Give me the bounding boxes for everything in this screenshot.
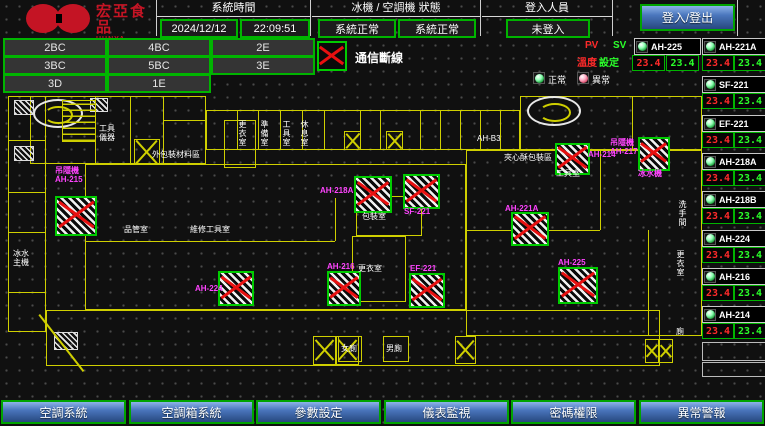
ahu-icon-EF-221[interactable] bbox=[409, 273, 445, 308]
equipment-label: AH-225 bbox=[558, 258, 586, 267]
brand-emblem-icon bbox=[26, 3, 92, 34]
wall-line bbox=[335, 198, 336, 241]
equipment-label: AH-224 bbox=[195, 284, 223, 293]
wall-line bbox=[460, 110, 461, 150]
room-label: 女廁 bbox=[341, 344, 357, 353]
stair-icon bbox=[386, 131, 403, 150]
unit-sv-value: 23.4 bbox=[666, 55, 699, 71]
floor-button-3bc[interactable]: 3BC bbox=[3, 56, 107, 75]
unit-name: EF-221 bbox=[719, 119, 749, 129]
unit-card[interactable]: EF-221 bbox=[702, 115, 765, 132]
room-label: 工具 儀器 bbox=[99, 124, 115, 142]
wall-line bbox=[258, 110, 259, 150]
led bbox=[706, 119, 715, 128]
unit-sv-value: 23.4 bbox=[734, 93, 765, 109]
equipment-label: AH-216 bbox=[327, 262, 355, 271]
unit-name: SF-221 bbox=[719, 80, 749, 90]
room-label: 品管室 bbox=[124, 225, 148, 234]
unit-led-icon bbox=[704, 233, 716, 245]
led bbox=[706, 272, 715, 281]
room-label: 洗手間 bbox=[678, 200, 687, 227]
ahu-status: 系統正常 bbox=[398, 19, 476, 38]
equipment-label: 吊隱機 AH-215 bbox=[55, 166, 83, 184]
equipment-label: EF-221 bbox=[410, 264, 436, 273]
room-label: 維修工具室 bbox=[190, 225, 230, 234]
menu-button-6[interactable]: 異常警報 bbox=[639, 400, 764, 424]
wall-line bbox=[8, 140, 46, 141]
room-label: 外包裝材料區 bbox=[152, 150, 200, 159]
wall-line bbox=[324, 110, 325, 150]
machine-status-section: 冰機 / 空調機 狀態 系統正常 系統正常 bbox=[312, 0, 480, 36]
unit-pv-value: 23.4 bbox=[632, 55, 665, 71]
system-time-label: 系統時間 bbox=[157, 0, 310, 17]
stairs-icon bbox=[62, 100, 96, 142]
wall-line bbox=[500, 110, 501, 150]
unit-card[interactable]: AH-221A bbox=[702, 38, 765, 55]
pv-sv-legend: PV SV 溫度 設定 正常 異常 bbox=[525, 36, 635, 90]
ahu-icon-AH-221A[interactable] bbox=[511, 212, 549, 246]
led bbox=[706, 310, 715, 319]
unit-name: AH-216 bbox=[719, 272, 750, 282]
floor-plan: 吊隱機 AH-215AH-218ASF-221AH-214吊隱機 AH-217冰… bbox=[0, 92, 765, 397]
unit-pv-value: 23.4 bbox=[702, 285, 734, 301]
unit-sv-value: 23.4 bbox=[734, 55, 765, 71]
stair-icon bbox=[645, 339, 659, 363]
set-label: 設定 bbox=[599, 54, 619, 69]
floor-button-2e[interactable]: 2E bbox=[211, 38, 315, 57]
floor-button-3e[interactable]: 3E bbox=[211, 56, 315, 75]
unit-card[interactable]: AH-224 bbox=[702, 230, 765, 247]
unit-pv-value: 23.4 bbox=[702, 93, 734, 109]
equipment-label: AH-221A bbox=[505, 204, 538, 213]
unit-name: AH-224 bbox=[719, 234, 750, 244]
stair-icon bbox=[455, 336, 476, 364]
abnormal-label: 異常 bbox=[592, 73, 610, 86]
unit-sv-value: 23.4 bbox=[734, 285, 765, 301]
room-label: 夾心酥包裝區 bbox=[504, 153, 552, 162]
unit-name: AH-221A bbox=[719, 42, 757, 52]
wall-line bbox=[8, 232, 46, 233]
wall bbox=[8, 96, 46, 332]
led bbox=[706, 80, 715, 89]
unit-card[interactable]: SF-221 bbox=[702, 76, 765, 93]
menu-button-2[interactable]: 空調箱系統 bbox=[129, 400, 254, 424]
equipment-label: 吊隱機 AH-217 bbox=[610, 138, 638, 156]
normal-label: 正常 bbox=[548, 73, 566, 86]
unit-card[interactable]: AH-218A bbox=[702, 153, 765, 170]
room-label: 準備室 bbox=[260, 120, 269, 147]
equipment-hatch bbox=[14, 146, 34, 161]
floor-button-1e[interactable]: 1E bbox=[107, 74, 211, 93]
unit-led-icon bbox=[636, 41, 648, 53]
wall-line bbox=[280, 110, 281, 150]
machine-status-label: 冰機 / 空調機 狀態 bbox=[312, 0, 480, 17]
login-section: 登入人員 未登入 bbox=[482, 0, 612, 36]
login-label: 登入人員 bbox=[482, 0, 612, 17]
unit-pv-value: 23.4 bbox=[702, 55, 734, 71]
abnormal-led-icon bbox=[577, 72, 589, 84]
wall-line bbox=[130, 96, 131, 164]
chiller-status: 系統正常 bbox=[318, 19, 396, 38]
menu-button-5[interactable]: 密碼權限 bbox=[511, 400, 636, 424]
floor-button-2bc[interactable]: 2BC bbox=[3, 38, 107, 57]
equipment-hatch bbox=[14, 100, 34, 115]
unit-sv-value: 23.4 bbox=[734, 323, 765, 339]
led bbox=[706, 157, 715, 166]
brand-logo: 宏亞食品 HUNYA FOODS bbox=[26, 2, 156, 36]
scada-screen: 宏亞食品 HUNYA FOODS 系統時間 2024/12/12 22:09:5… bbox=[0, 0, 765, 426]
time-display: 22:09:51 bbox=[240, 19, 310, 38]
equipment-label: SF-221 bbox=[404, 207, 430, 216]
unit-card-primary[interactable]: AH-225 bbox=[634, 38, 701, 55]
room-label: 冰水 主機 bbox=[13, 249, 29, 267]
unit-pv-value: 23.4 bbox=[702, 323, 734, 339]
wall-line bbox=[480, 110, 481, 150]
unit-led-icon bbox=[704, 41, 716, 53]
unit-led-icon bbox=[704, 309, 716, 321]
ahu-icon-AH-216[interactable] bbox=[327, 271, 361, 306]
room-label: 包裝室 bbox=[362, 212, 386, 221]
floor-button-5bc[interactable]: 5BC bbox=[107, 56, 211, 75]
wall bbox=[466, 150, 702, 336]
unit-pv-value: 23.4 bbox=[702, 208, 734, 224]
wall-line bbox=[8, 192, 46, 193]
room-label: AH-B3 bbox=[477, 134, 501, 143]
room-label: 更衣室 bbox=[676, 250, 685, 277]
unit-card[interactable]: AH-218B bbox=[702, 191, 765, 208]
floor-button-4bc[interactable]: 4BC bbox=[107, 38, 211, 57]
comm-loss-legend: 通信斷線 bbox=[315, 40, 465, 76]
floor-button-3d[interactable]: 3D bbox=[3, 74, 107, 93]
ahu-icon-AH-224[interactable] bbox=[218, 271, 254, 306]
ahu-icon-吊隱機-AH-217[interactable] bbox=[638, 137, 670, 171]
brand-name: 宏亞食品 bbox=[96, 4, 156, 36]
room-label: 工具室 bbox=[556, 169, 580, 178]
wall-line bbox=[163, 120, 206, 121]
unit-card[interactable]: AH-214 bbox=[702, 306, 765, 323]
unit-led-icon bbox=[704, 194, 716, 206]
unit-name: AH-218B bbox=[719, 195, 757, 205]
room-label: 更衣室 bbox=[238, 120, 247, 147]
stair-icon bbox=[659, 339, 673, 363]
ramp-icon bbox=[527, 96, 581, 126]
unit-pv-value: 23.4 bbox=[702, 247, 734, 263]
menu-button-1[interactable]: 空調系統 bbox=[1, 400, 126, 424]
room-label: 更衣室 bbox=[358, 264, 382, 273]
wall-line bbox=[8, 292, 46, 293]
wall-line bbox=[648, 230, 649, 336]
pv-label: PV bbox=[585, 40, 598, 51]
wall-line bbox=[440, 110, 441, 150]
equipment-label: AH-218A bbox=[320, 186, 353, 195]
unit-pv-value: 23.4 bbox=[702, 132, 734, 148]
ahu-icon-吊隱機-AH-215[interactable] bbox=[55, 196, 97, 236]
ahu-icon-AH-225[interactable] bbox=[558, 267, 598, 304]
comm-loss-icon bbox=[317, 41, 347, 71]
normal-led-icon bbox=[533, 72, 545, 84]
unit-sv-value: 23.4 bbox=[734, 132, 765, 148]
unit-name: AH-218A bbox=[719, 157, 757, 167]
comm-loss-label: 通信斷線 bbox=[355, 49, 403, 66]
system-time-section: 系統時間 2024/12/12 22:09:51 bbox=[157, 0, 310, 36]
ahu-icon-AH-218A[interactable] bbox=[354, 176, 392, 213]
login-logout-button[interactable]: 登入/登出 bbox=[640, 4, 735, 31]
unit-sv-value: 23.4 bbox=[734, 170, 765, 186]
unit-sv-value: 23.4 bbox=[734, 247, 765, 263]
date-display: 2024/12/12 bbox=[160, 19, 238, 38]
unit-sv-value: 23.4 bbox=[734, 208, 765, 224]
unit-led-icon bbox=[704, 79, 716, 91]
led bbox=[706, 195, 715, 204]
empty-unit-slot bbox=[702, 362, 765, 377]
led bbox=[706, 234, 715, 243]
unit-led-icon bbox=[704, 271, 716, 283]
unit-card[interactable]: AH-216 bbox=[702, 268, 765, 285]
menu-button-4[interactable]: 儀表監視 bbox=[384, 400, 509, 424]
header: 宏亞食品 HUNYA FOODS 系統時間 2024/12/12 22:09:5… bbox=[0, 0, 765, 36]
ahu-icon-SF-221[interactable] bbox=[403, 174, 440, 209]
room-label: 廁 bbox=[676, 327, 684, 336]
menu-button-3[interactable]: 參數設定 bbox=[256, 400, 381, 424]
temp-label: 溫度 bbox=[577, 54, 597, 69]
equipment-label: 冰水機 bbox=[638, 169, 662, 178]
unit-name: AH-225 bbox=[651, 42, 682, 52]
stair-icon bbox=[313, 336, 336, 365]
wall-line bbox=[420, 110, 421, 150]
room-label: 工具室 bbox=[282, 120, 291, 147]
room-label: 男廁 bbox=[386, 344, 402, 353]
room-label: 休息室 bbox=[300, 120, 309, 147]
unit-pv-value: 23.4 bbox=[702, 170, 734, 186]
wall-line bbox=[380, 110, 381, 150]
wall-line bbox=[600, 150, 601, 230]
sv-label: SV bbox=[613, 40, 626, 51]
unit-name: AH-214 bbox=[719, 310, 750, 320]
unit-led-icon bbox=[704, 118, 716, 130]
stair-icon bbox=[344, 131, 361, 150]
led bbox=[706, 42, 715, 51]
empty-unit-slot bbox=[702, 342, 765, 361]
wall-line bbox=[85, 241, 335, 242]
unit-led-icon bbox=[704, 156, 716, 168]
